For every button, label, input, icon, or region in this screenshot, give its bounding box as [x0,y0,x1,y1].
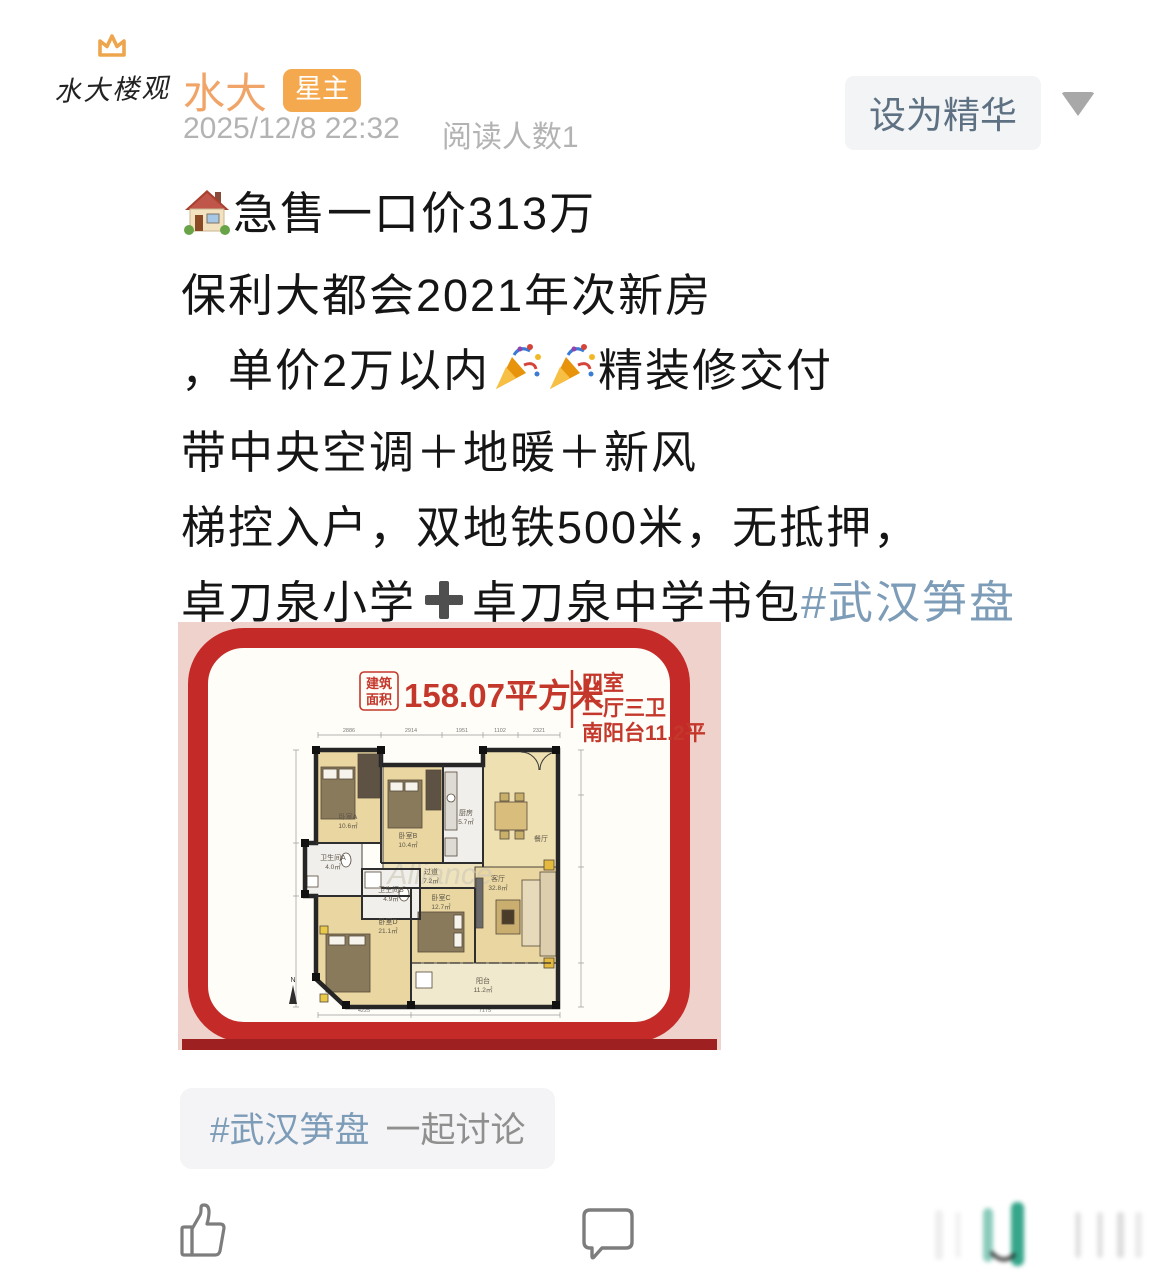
fp-room-area: 5.7㎡ [458,817,474,826]
chevron-down-icon[interactable] [1061,92,1095,116]
fp-room-name: 卧室B [399,831,418,840]
fp-dim: 2914 [405,728,417,734]
fp-room-area: 4.9㎡ [383,894,399,903]
fp-room-name: 卧室A [339,812,358,821]
fp-room-name: 卧室D [378,917,397,926]
comment-button[interactable] [580,1206,636,1265]
owner-badge: 星主 [283,69,361,112]
content-line-2: 保利大都会2021年次新房 [181,258,1101,333]
hashtag-link[interactable]: #武汉笋盘 [801,577,1016,628]
fp-area-label-1: 建筑 [366,676,392,691]
post-date: 2025/12/8 22:32 [183,112,400,156]
fp-room-area: 7.2㎡ [423,876,439,885]
content-line-1: 急售一口价313万 [181,176,1101,258]
post-meta: 2025/12/8 22:32 阅读人数1 [183,112,579,156]
comment-bubble-icon [580,1206,636,1260]
fp-north-label: N [290,977,295,984]
content-line-5: 梯控入户，双地铁500米，无抵押， [181,490,1101,565]
party-popper-emoji [544,340,598,415]
thumbs-up-icon [180,1202,228,1262]
fp-room-name: 厨房 [459,808,473,817]
set-essence-button[interactable]: 设为精华 [845,76,1041,150]
fp-area-value: 158.07平方米 [404,677,604,714]
like-button[interactable] [180,1202,228,1267]
read-count: 阅读人数1 [442,112,579,156]
fp-room-area: 21.1㎡ [378,926,398,935]
avatar[interactable]: 水大楼观 [52,28,172,154]
fp-room-name: 阳台 [476,976,490,985]
fp-dim: 2886 [343,728,355,734]
fp-room-name: 客厅 [491,874,505,883]
fp-room-name: 餐厅 [534,834,548,843]
fp-room-area: 12.7㎡ [431,902,451,911]
fp-area-label-2: 面积 [366,692,392,707]
fp-room-area: 11.2㎡ [474,985,493,994]
topic-tag-pill[interactable]: #武汉笋盘 一起讨论 [180,1088,555,1169]
fp-dim: 1102 [494,728,506,734]
tag-suffix: 一起讨论 [385,1102,525,1153]
content-line-3: ，单价2万以内 精装修交付 [181,333,1101,415]
fp-room-name: 卫生间B [378,885,404,894]
content-line-4: 带中央空调＋地暖＋新风 [181,415,1101,490]
fp-room-area: 4.0㎡ [325,862,341,871]
fp-summary-3: 南阳台11.2平 [582,721,706,745]
fp-summary-1: 四室 [582,671,624,695]
fp-room-name: 过道 [424,867,438,876]
floorplan-image[interactable]: 建筑 面积 158.07平方米 四室 二厅三卫 南阳台11.2平 2886 29… [178,622,721,1050]
party-popper-emoji [490,340,544,415]
fp-room-area: 32.8㎡ [488,883,508,892]
fp-summary-2: 二厅三卫 [582,697,666,720]
post-content: 急售一口价313万 保利大都会2021年次新房 ，单价2万以内 精装修交付 [181,176,1101,644]
fp-dim: 1951 [456,728,468,734]
fp-dim: 2321 [533,728,545,734]
house-emoji [181,183,233,258]
crown-icon [91,28,133,64]
fp-room-area: 10.6㎡ [338,821,358,830]
fp-room-name: 卫生间A [320,853,346,862]
avatar-calligraphy: 水大楼观 [51,66,172,109]
fp-room-name: 卧室C [431,893,450,902]
fp-room-area: 10.4㎡ [398,840,418,849]
tag-hashtag[interactable]: #武汉笋盘 [210,1102,369,1153]
blurred-green-artifact [925,1200,1155,1270]
